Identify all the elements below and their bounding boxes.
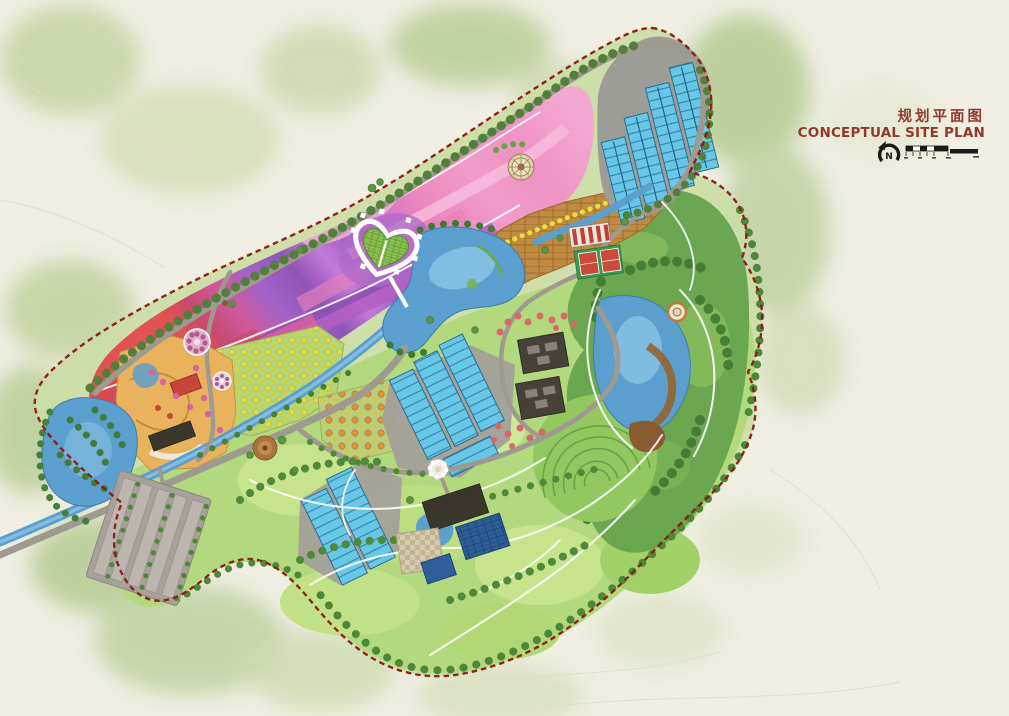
flower-plaza-large [184,329,210,355]
forest-viewpoint-ring [668,303,686,321]
hilltop-plaza [253,436,277,460]
north-label: N [885,152,893,162]
flower-plaza-small [213,372,231,390]
site-plan-page: 规划平面图 CONCEPTUAL SITE PLAN N [0,0,1009,716]
observation-tower-plaza [508,154,534,180]
plan-title-zh: 规划平面图 [898,107,986,125]
conceptual-site-plan-map: 规划平面图 CONCEPTUAL SITE PLAN N [0,0,1009,716]
flower-roundabout [428,459,449,479]
plan-title-en: CONCEPTUAL SITE PLAN [798,125,985,141]
